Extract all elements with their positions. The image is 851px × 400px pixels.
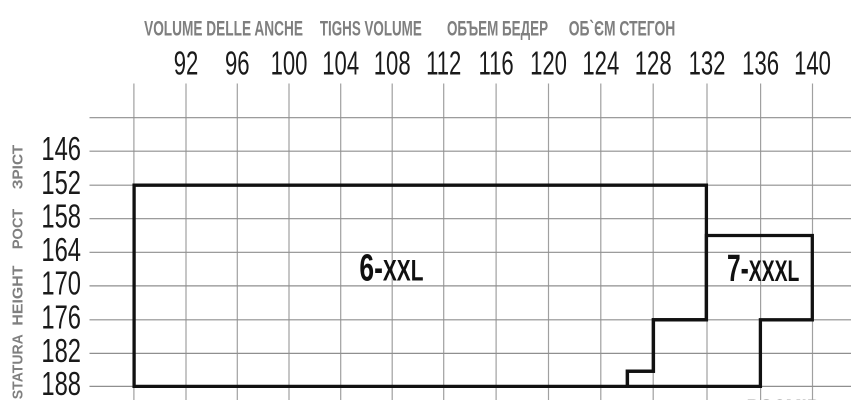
svg-text:124: 124 [582,45,619,81]
svg-text:РОЗМІР: РОЗМІР [746,394,819,400]
svg-text:96: 96 [225,45,250,81]
svg-text:STATURA: STATURA [10,334,27,399]
svg-text:128: 128 [635,45,672,81]
svg-text:РОСТ: РОСТ [10,209,26,249]
svg-text:112: 112 [426,45,461,81]
svg-text:164: 164 [41,232,81,269]
svg-text:HEIGHT: HEIGHT [10,265,26,326]
svg-text:104: 104 [322,45,359,81]
svg-text:ОБЪЕМ БЕДЕР: ОБЪЕМ БЕДЕР [447,16,548,40]
svg-text:92: 92 [174,45,199,81]
svg-text:VOLUME DELLE ANCHE: VOLUME DELLE ANCHE [144,17,303,41]
svg-text:ОБ`ЄМ СТЕГОН: ОБ`ЄМ СТЕГОН [569,17,676,41]
svg-text:108: 108 [374,45,411,81]
svg-text:158: 158 [41,199,81,236]
svg-text:188: 188 [41,367,81,400]
svg-text:176: 176 [41,300,81,337]
svg-text:140: 140 [794,45,831,81]
svg-text:TIGHS VOLUME: TIGHS VOLUME [320,16,422,40]
svg-text:152: 152 [41,165,81,202]
svg-text:ЗРІСТ: ЗРІСТ [9,144,26,189]
svg-text:146: 146 [41,131,81,168]
svg-text:100: 100 [271,45,308,81]
svg-text:116: 116 [478,45,513,81]
svg-text:182: 182 [41,334,81,371]
svg-text:136: 136 [742,45,779,81]
svg-text:132: 132 [689,45,726,81]
svg-text:120: 120 [530,45,567,81]
svg-text:170: 170 [41,266,81,303]
